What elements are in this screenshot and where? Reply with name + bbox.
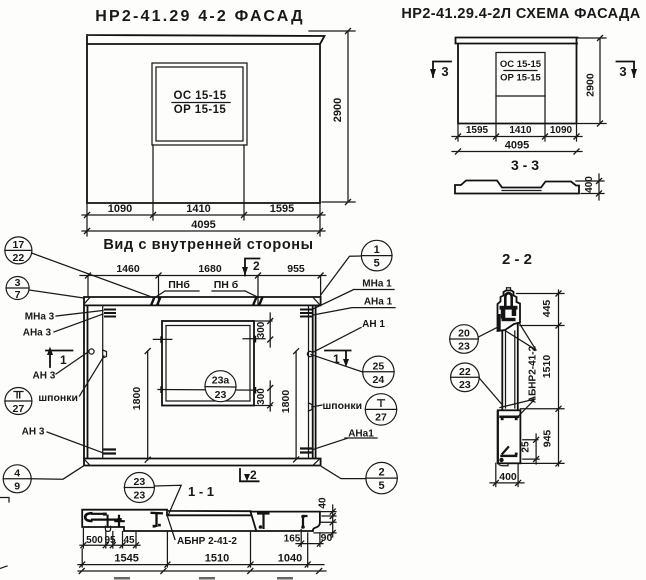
svg-text:445: 445 [541, 300, 553, 318]
svg-text:шпонки: шпонки [38, 392, 78, 404]
svg-text:АНа 3: АНа 3 [23, 328, 52, 339]
svg-text:1: 1 [374, 244, 380, 256]
svg-text:7: 7 [15, 289, 21, 301]
svg-text:1595: 1595 [466, 125, 489, 136]
svg-text:МНа 3: МНа 3 [25, 312, 55, 323]
svg-text:400: 400 [499, 471, 517, 483]
svg-text:945: 945 [541, 430, 553, 448]
svg-text:НР2-41.29.4-2Л СХЕМА ФАСАДА: НР2-41.29.4-2Л СХЕМА ФАСАДА [401, 6, 640, 22]
svg-text:ОР 15-15: ОР 15-15 [174, 104, 227, 116]
svg-text:1410: 1410 [509, 125, 532, 136]
svg-text:3: 3 [441, 64, 448, 79]
svg-text:25: 25 [521, 441, 532, 453]
svg-text:АБНР2-41-2: АБНР2-41-2 [528, 345, 539, 403]
svg-text:МНа 1: МНа 1 [362, 279, 392, 290]
svg-text:1090: 1090 [550, 125, 573, 136]
svg-text:1510: 1510 [205, 553, 229, 565]
svg-text:45: 45 [123, 535, 135, 546]
svg-text:23: 23 [134, 490, 146, 502]
svg-text:2 - 2: 2 - 2 [502, 251, 532, 268]
svg-text:3: 3 [619, 64, 626, 79]
svg-text:23: 23 [134, 476, 146, 488]
svg-text:27: 27 [375, 412, 387, 424]
svg-text:1 - 1: 1 - 1 [188, 484, 214, 499]
svg-text:1410: 1410 [186, 203, 210, 215]
svg-text:23: 23 [459, 379, 471, 391]
svg-text:24: 24 [373, 374, 385, 386]
svg-text:165: 165 [284, 534, 301, 545]
svg-text:17: 17 [13, 239, 25, 251]
svg-text:АБНР 2-41-2: АБНР 2-41-2 [177, 536, 237, 547]
svg-text:АНа 1: АНа 1 [364, 297, 393, 308]
svg-text:2900: 2900 [585, 73, 597, 97]
svg-text:1460: 1460 [116, 263, 140, 275]
svg-text:НР2-41.29 4-2 ФАСАД: НР2-41.29 4-2 ФАСАД [95, 8, 304, 25]
svg-text:1800: 1800 [131, 387, 143, 411]
svg-text:Вид с внутренней стороны: Вид с внутренней стороны [103, 237, 313, 253]
svg-text:ОР 15-15: ОР 15-15 [500, 73, 541, 84]
svg-text:20: 20 [458, 328, 470, 340]
svg-text:ПНб: ПНб [168, 279, 190, 291]
svg-text:3 - 3: 3 - 3 [511, 157, 539, 173]
svg-text:25: 25 [373, 360, 385, 372]
svg-text:23: 23 [215, 389, 227, 401]
svg-text:1680: 1680 [198, 263, 222, 275]
svg-text:400: 400 [584, 176, 595, 193]
svg-text:300: 300 [256, 321, 267, 338]
svg-text:90: 90 [321, 532, 333, 544]
svg-text:1545: 1545 [114, 553, 138, 565]
svg-text:40: 40 [318, 497, 329, 509]
svg-text:1: 1 [60, 353, 67, 367]
svg-text:4: 4 [14, 468, 20, 480]
svg-text:I: I [380, 399, 383, 410]
svg-text:500: 500 [86, 535, 103, 546]
svg-text:23а: 23а [212, 375, 230, 387]
svg-text:4095: 4095 [191, 219, 215, 231]
svg-text:ПН б: ПН б [214, 279, 239, 291]
svg-text:АН 3: АН 3 [22, 427, 45, 438]
svg-text:23: 23 [458, 341, 470, 353]
svg-text:АН 1: АН 1 [362, 319, 385, 330]
svg-text:5: 5 [379, 480, 385, 492]
svg-text:2: 2 [379, 467, 385, 479]
svg-text:22: 22 [13, 252, 25, 264]
svg-text:АН 3: АН 3 [33, 371, 56, 382]
svg-text:3: 3 [15, 277, 21, 289]
svg-text:1595: 1595 [270, 203, 294, 215]
svg-text:5: 5 [374, 258, 380, 270]
svg-text:4095: 4095 [505, 140, 529, 152]
svg-text:2900: 2900 [332, 98, 344, 122]
svg-text:ОС 15-15: ОС 15-15 [500, 59, 542, 70]
svg-text:2: 2 [253, 259, 260, 273]
svg-text:9: 9 [14, 481, 20, 493]
svg-text:22: 22 [459, 366, 471, 378]
svg-text:300: 300 [256, 388, 267, 405]
svg-text:95: 95 [104, 535, 116, 546]
svg-text:1510: 1510 [541, 355, 553, 379]
svg-text:1800: 1800 [280, 390, 292, 414]
svg-text:27: 27 [13, 403, 25, 415]
svg-text:2: 2 [250, 468, 257, 482]
svg-text:1040: 1040 [278, 553, 302, 565]
svg-text:II: II [16, 391, 21, 402]
svg-text:ОС 15-15: ОС 15-15 [173, 90, 226, 102]
svg-text:955: 955 [287, 263, 305, 275]
svg-text:шпонки: шпонки [323, 400, 363, 412]
svg-text:1090: 1090 [108, 203, 132, 215]
